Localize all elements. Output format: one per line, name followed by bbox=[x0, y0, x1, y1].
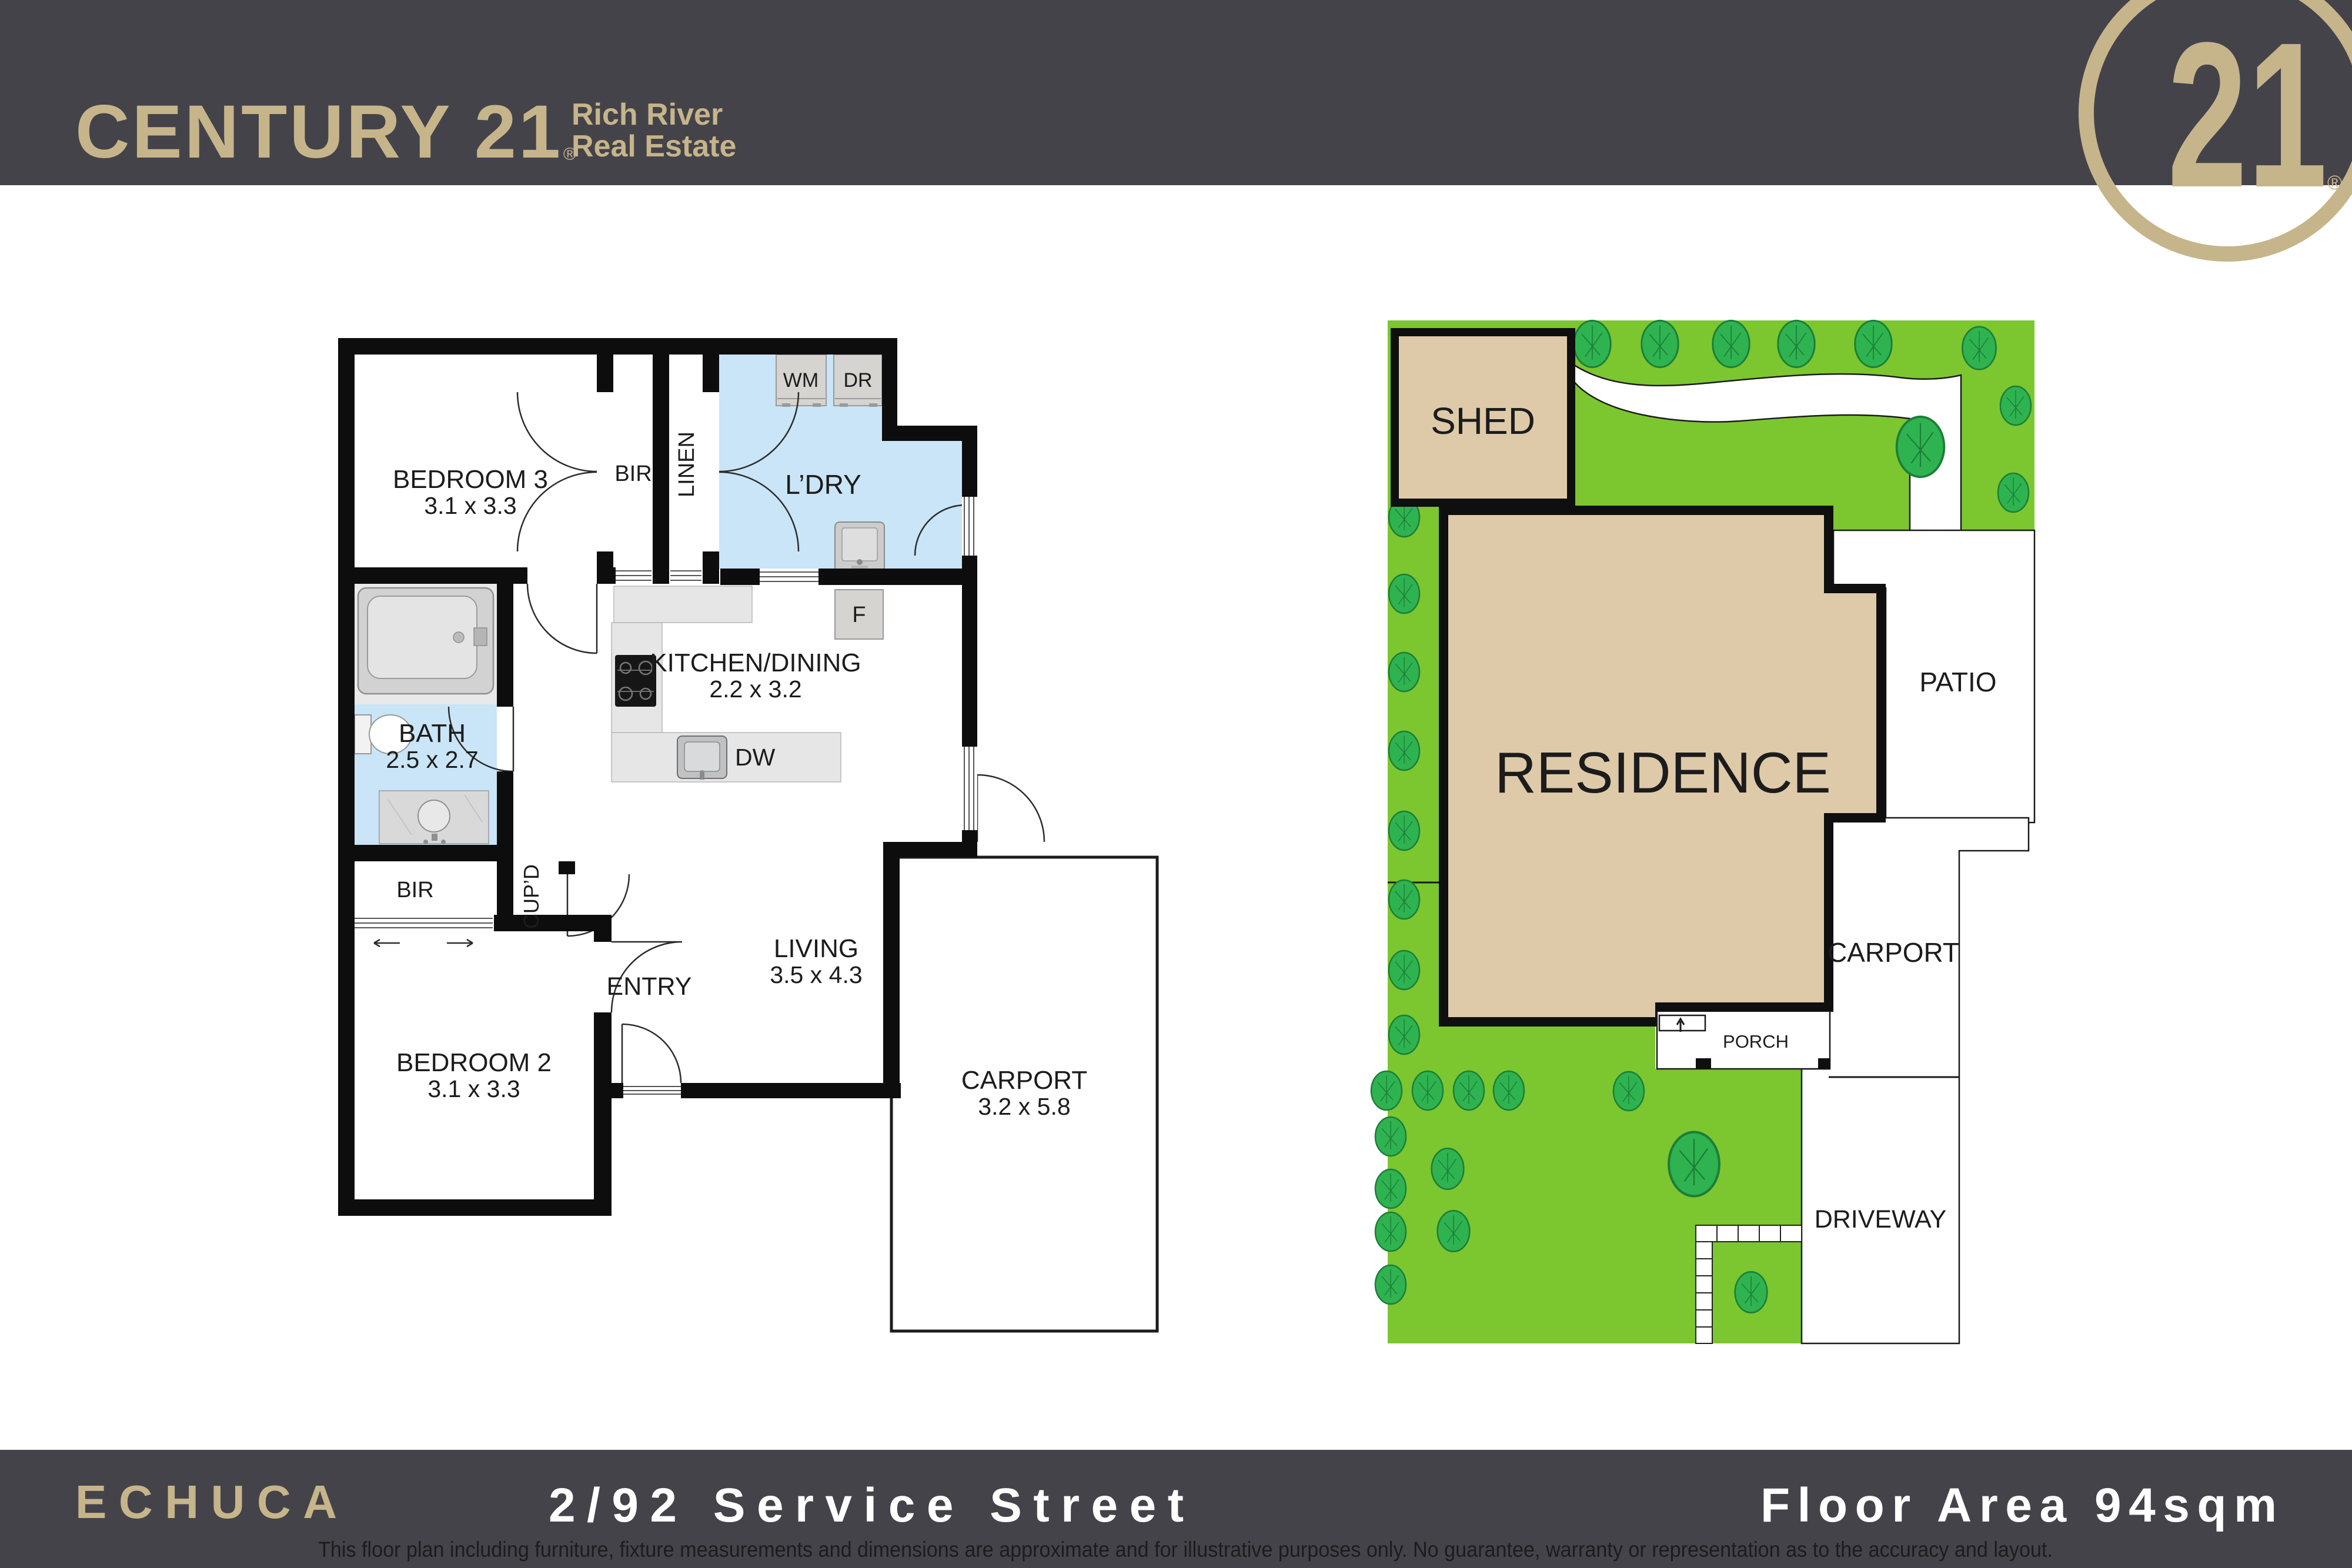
room-label-linen: LINEN bbox=[674, 432, 699, 497]
tree-icon bbox=[1389, 880, 1419, 919]
tree-icon bbox=[1713, 320, 1749, 367]
tree-icon bbox=[1494, 1071, 1524, 1110]
site-label-carport: CARPORT bbox=[1828, 937, 1959, 968]
sliding-door-arrows-icon bbox=[374, 940, 473, 947]
header-bar: CENTURY 21 ® Rich River Real Estate 21 ® bbox=[0, 0, 2352, 254]
room-label-cupd: CUP’D bbox=[519, 864, 543, 929]
tree-icon bbox=[1642, 320, 1678, 367]
tree-icon bbox=[1389, 951, 1419, 989]
room-label-bedroom2: BEDROOM 2 bbox=[396, 1048, 552, 1077]
appliance-label-dr: DR bbox=[843, 369, 872, 392]
vanity-icon bbox=[379, 791, 489, 844]
room-label-bir1: BIR bbox=[614, 462, 652, 486]
room-label-bedroom3: BEDROOM 3 bbox=[393, 465, 548, 494]
office-name-line1: Rich River bbox=[572, 98, 723, 132]
tree-icon bbox=[1375, 1265, 1406, 1304]
disclaimer-text: This floor plan including furniture, fix… bbox=[318, 1537, 2053, 1562]
site-label-shed: SHED bbox=[1431, 400, 1535, 442]
room-label-kitchen: KITCHEN/DINING bbox=[650, 648, 861, 677]
office-name-line2: Real Estate bbox=[572, 129, 736, 163]
tree-icon bbox=[1574, 320, 1611, 367]
site-label-driveway: DRIVEWAY bbox=[1815, 1205, 1947, 1233]
room-label-living: LIVING bbox=[774, 934, 858, 963]
tree-icon bbox=[1389, 811, 1419, 850]
tree-icon bbox=[1375, 1169, 1406, 1208]
room-label-carport: CARPORT bbox=[961, 1066, 1087, 1095]
tree-icon bbox=[1412, 1071, 1443, 1110]
brand-logo: CENTURY 21 bbox=[75, 90, 560, 174]
tree-icon bbox=[1998, 473, 2029, 512]
floorplan-page: CENTURY 21 ® Rich River Real Estate 21 ® bbox=[0, 0, 2352, 1568]
tree-icon bbox=[1438, 1211, 1470, 1251]
tree-icon bbox=[1432, 1148, 1464, 1189]
tree-icon bbox=[1735, 1272, 1768, 1312]
tree-icon bbox=[1962, 327, 1996, 370]
room-dim-living: 3.5 x 4.3 bbox=[770, 961, 862, 988]
floor-area-label: Floor Area 94sqm bbox=[1760, 1479, 2277, 1532]
tree-icon bbox=[1669, 1132, 1719, 1196]
tree-icon bbox=[2000, 386, 2031, 425]
tree-icon bbox=[1375, 1212, 1406, 1251]
driveway-area bbox=[1802, 818, 2029, 1343]
seal-registered-mark: ® bbox=[2327, 172, 2342, 194]
appliance-label-fridge: F bbox=[852, 603, 866, 627]
tree-icon bbox=[1778, 320, 1815, 367]
room-label-laundry: L’DRY bbox=[785, 469, 861, 500]
tree-icon bbox=[1375, 1117, 1406, 1156]
site-plan: SHED RESIDENCE PATIO CARPORT PORCH DRIVE… bbox=[1371, 320, 2034, 1343]
room-label-bath: BATH bbox=[399, 719, 466, 748]
room-dim-bedroom2: 3.1 x 3.3 bbox=[427, 1075, 520, 1102]
room-dim-carport: 3.2 x 5.8 bbox=[978, 1093, 1070, 1120]
site-label-porch: PORCH bbox=[1723, 1031, 1789, 1052]
room-dim-bedroom3: 3.1 x 3.3 bbox=[424, 492, 516, 519]
tree-icon bbox=[1389, 653, 1419, 691]
appliance-label-wm: WM bbox=[783, 369, 818, 392]
tree-icon bbox=[1613, 1072, 1644, 1111]
room-dim-kitchen: 2.2 x 3.2 bbox=[709, 676, 801, 703]
floor-plan: BEDROOM 3 3.1 x 3.3 BIR LINEN L’DRY WM D… bbox=[338, 338, 1157, 1331]
tree-icon bbox=[1389, 1015, 1419, 1054]
tree-icon bbox=[1371, 1071, 1402, 1110]
footer-bar: ECHUCA 2/92 Service Street Floor Area 94… bbox=[0, 1450, 2352, 1568]
bathtub-icon bbox=[358, 588, 493, 694]
tree-icon bbox=[1454, 1071, 1484, 1110]
seal-number: 21 bbox=[2167, 0, 2327, 230]
tree-icon bbox=[1855, 320, 1892, 367]
appliance-label-dw: DW bbox=[735, 744, 776, 771]
site-label-patio: PATIO bbox=[1919, 667, 1996, 697]
tree-icon bbox=[1897, 417, 1945, 477]
island-sink-icon bbox=[677, 736, 727, 780]
tree-icon bbox=[1389, 574, 1419, 613]
room-label-entry: ENTRY bbox=[607, 972, 692, 1001]
room-dim-bath: 2.5 x 2.7 bbox=[386, 746, 478, 773]
tree-icon bbox=[1389, 731, 1419, 770]
site-label-residence: RESIDENCE bbox=[1495, 740, 1831, 805]
laundry-sink-icon bbox=[835, 522, 884, 572]
room-label-bir2: BIR bbox=[396, 878, 433, 902]
